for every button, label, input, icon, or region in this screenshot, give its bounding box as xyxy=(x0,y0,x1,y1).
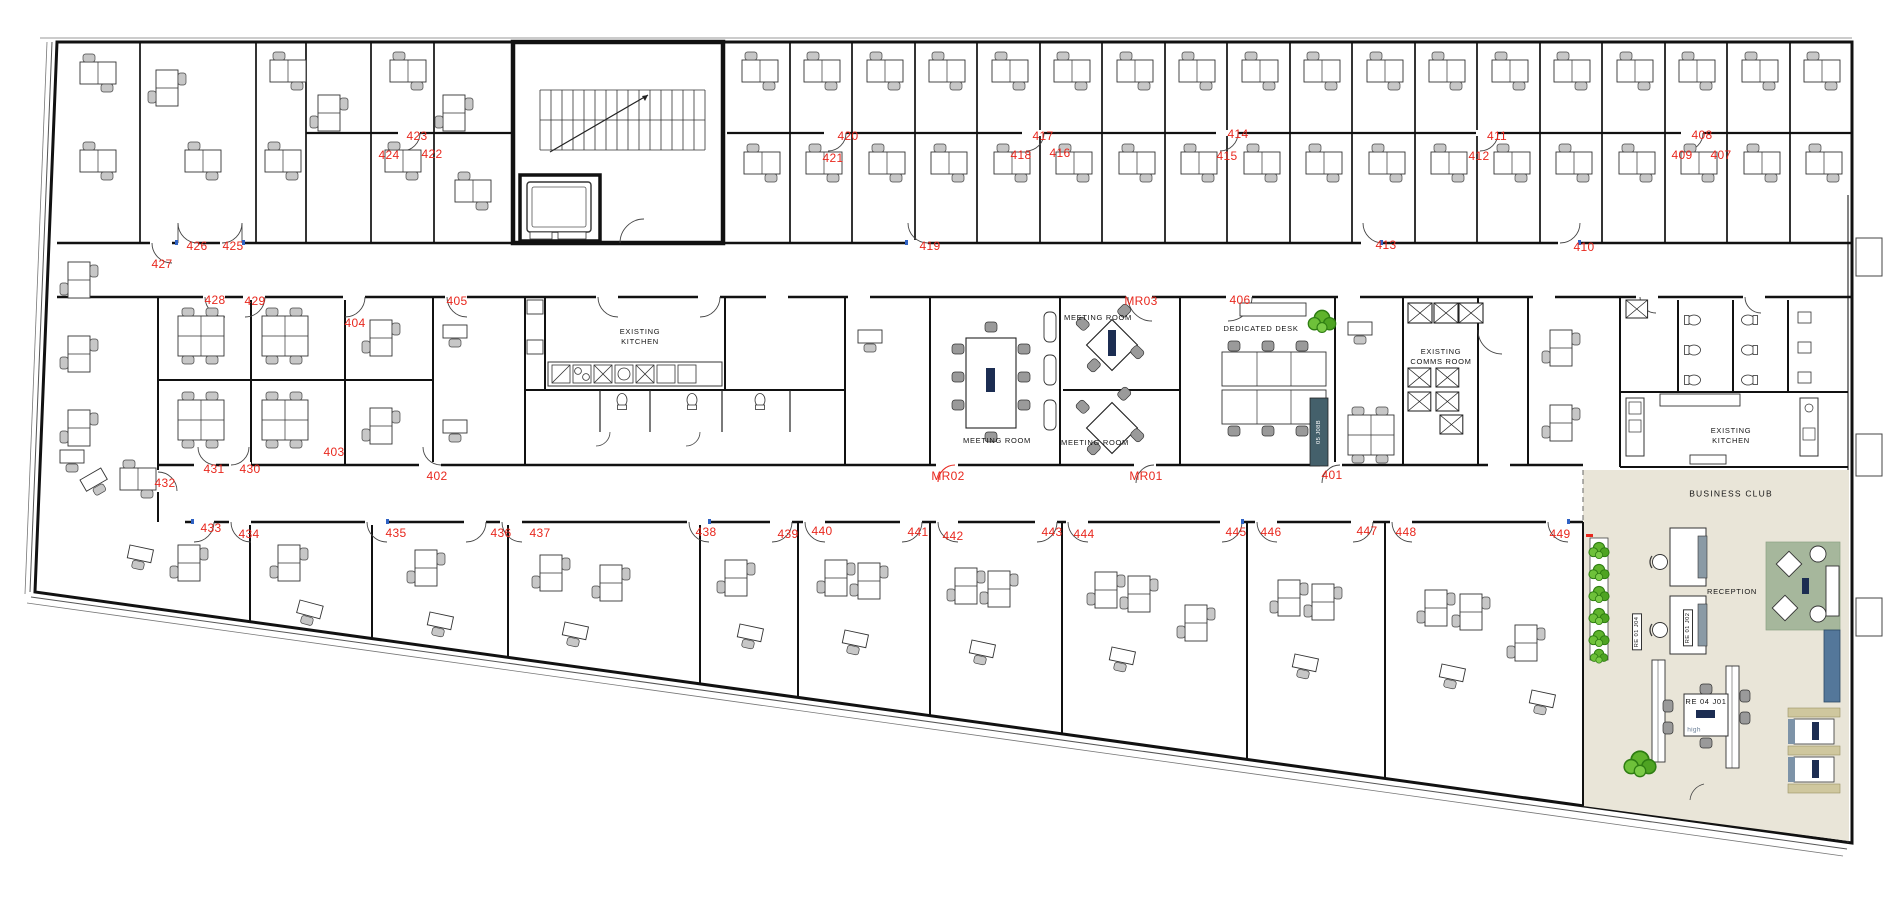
room-label-403: 403 xyxy=(324,445,345,459)
room-label-443: 443 xyxy=(1042,525,1063,539)
tag-re-01-j04: RE 01 J04 xyxy=(1632,614,1642,651)
room-label-439: 439 xyxy=(778,527,799,541)
room-label-406: 406 xyxy=(1230,293,1251,307)
room-label-449: 449 xyxy=(1550,527,1571,541)
area-label-existing-comms-room: EXISTING COMMS ROOM xyxy=(1410,347,1471,367)
room-label-433: 433 xyxy=(201,521,222,535)
room-label-421: 421 xyxy=(823,151,844,165)
room-label-mr03: MR03 xyxy=(1124,294,1157,308)
room-label-413: 413 xyxy=(1376,238,1397,252)
room-label-418: 418 xyxy=(1011,148,1032,162)
room-label-438: 438 xyxy=(696,525,717,539)
room-label-430: 430 xyxy=(240,462,261,476)
tag-re-01-j02: RE 01 J02 xyxy=(1683,610,1693,647)
area-label-reception: RECEPTION xyxy=(1707,587,1757,597)
room-label-405: 405 xyxy=(447,294,468,308)
room-label-445: 445 xyxy=(1226,525,1247,539)
room-label-431: 431 xyxy=(204,462,225,476)
stair-core xyxy=(513,42,723,243)
room-label-440: 440 xyxy=(812,524,833,538)
area-label-dedicated-desk: DEDICATED DESK xyxy=(1223,324,1298,334)
room-label-411: 411 xyxy=(1487,129,1507,143)
room-label-435: 435 xyxy=(386,526,407,540)
room-label-446: 446 xyxy=(1261,525,1282,539)
room-label-419: 419 xyxy=(920,239,941,253)
room-label-mr01: MR01 xyxy=(1129,469,1162,483)
area-label-high: high xyxy=(1687,727,1701,736)
room-label-437: 437 xyxy=(530,526,551,540)
area-label-business-club: BUSINESS CLUB xyxy=(1689,488,1773,499)
room-label-429: 429 xyxy=(245,294,266,308)
room-label-410: 410 xyxy=(1574,240,1595,254)
floor-plan-page: 4014024034044054064074084094104114124134… xyxy=(0,0,1896,923)
room-label-442: 442 xyxy=(943,529,964,543)
room-label-432: 432 xyxy=(155,476,176,490)
room-label-424: 424 xyxy=(379,148,400,162)
room-label-mr02: MR02 xyxy=(931,469,964,483)
room-label-441: 441 xyxy=(908,525,929,539)
room-label-444: 444 xyxy=(1074,527,1095,541)
area-label-meeting-room: MEETING ROOM xyxy=(1064,313,1132,323)
tag-05-j08b: 05 J08B xyxy=(1315,418,1323,446)
room-label-415: 415 xyxy=(1217,149,1238,163)
room-label-414: 414 xyxy=(1228,127,1249,141)
room-label-401: 401 xyxy=(1322,468,1343,482)
room-label-423: 423 xyxy=(407,129,428,143)
room-label-408: 408 xyxy=(1692,128,1713,142)
room-label-434: 434 xyxy=(239,527,260,541)
room-label-417: 417 xyxy=(1033,129,1054,143)
area-label-meeting-room: MEETING ROOM xyxy=(1061,438,1129,448)
room-label-412: 412 xyxy=(1469,149,1490,163)
room-label-409: 409 xyxy=(1672,148,1693,162)
room-label-448: 448 xyxy=(1396,525,1417,539)
room-label-404: 404 xyxy=(345,316,366,330)
room-label-416: 416 xyxy=(1050,146,1071,160)
area-label-meeting-room: MEETING ROOM xyxy=(963,436,1031,446)
room-label-420: 420 xyxy=(838,129,859,143)
room-label-436: 436 xyxy=(491,526,512,540)
room-label-425: 425 xyxy=(223,239,244,253)
room-label-447: 447 xyxy=(1357,524,1378,538)
area-label-existing-kitchen: EXISTING KITCHEN xyxy=(1711,426,1752,446)
room-label-422: 422 xyxy=(422,147,443,161)
room-label-402: 402 xyxy=(427,469,448,483)
room-label-428: 428 xyxy=(205,293,226,307)
room-label-407: 407 xyxy=(1711,148,1732,162)
area-label-re-04-j01: RE 04 J01 xyxy=(1685,697,1726,707)
room-label-427: 427 xyxy=(152,257,173,271)
floor-plan-drawing xyxy=(0,0,1896,923)
room-label-426: 426 xyxy=(187,239,208,253)
area-label-existing-kitchen: EXISTING KITCHEN xyxy=(620,327,661,347)
